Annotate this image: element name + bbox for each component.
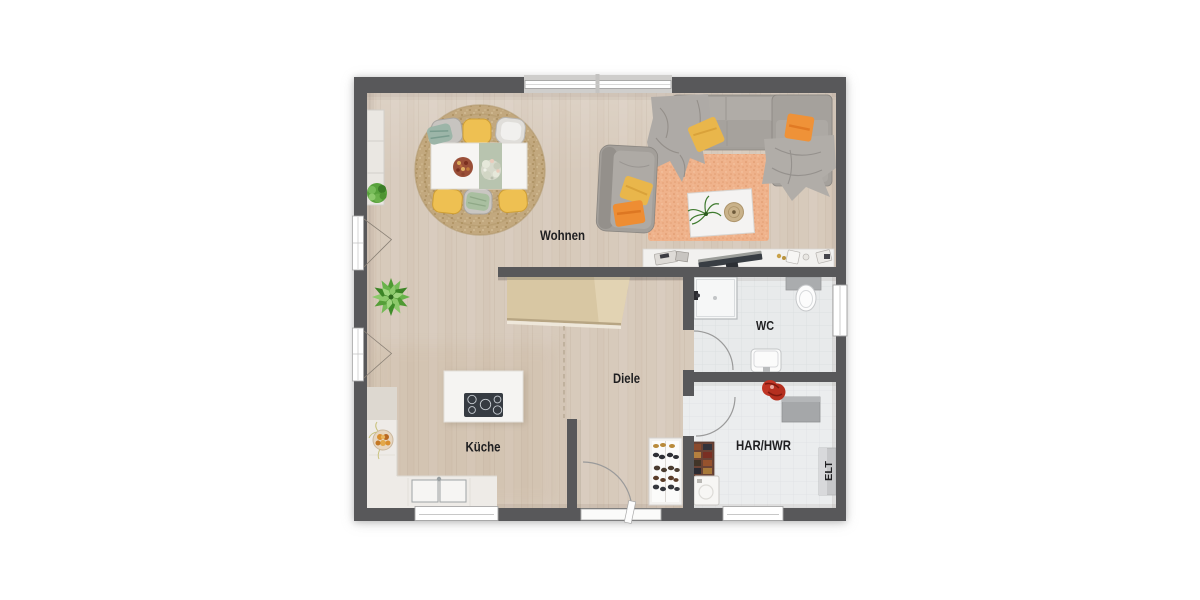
svg-text:Diele: Diele <box>613 370 640 386</box>
svg-text:Wohnen: Wohnen <box>540 227 585 243</box>
svg-text:WC: WC <box>756 318 774 333</box>
svg-text:ELT: ELT <box>824 461 835 481</box>
svg-text:HAR/HWR: HAR/HWR <box>736 437 791 453</box>
svg-text:Küche: Küche <box>466 439 501 455</box>
